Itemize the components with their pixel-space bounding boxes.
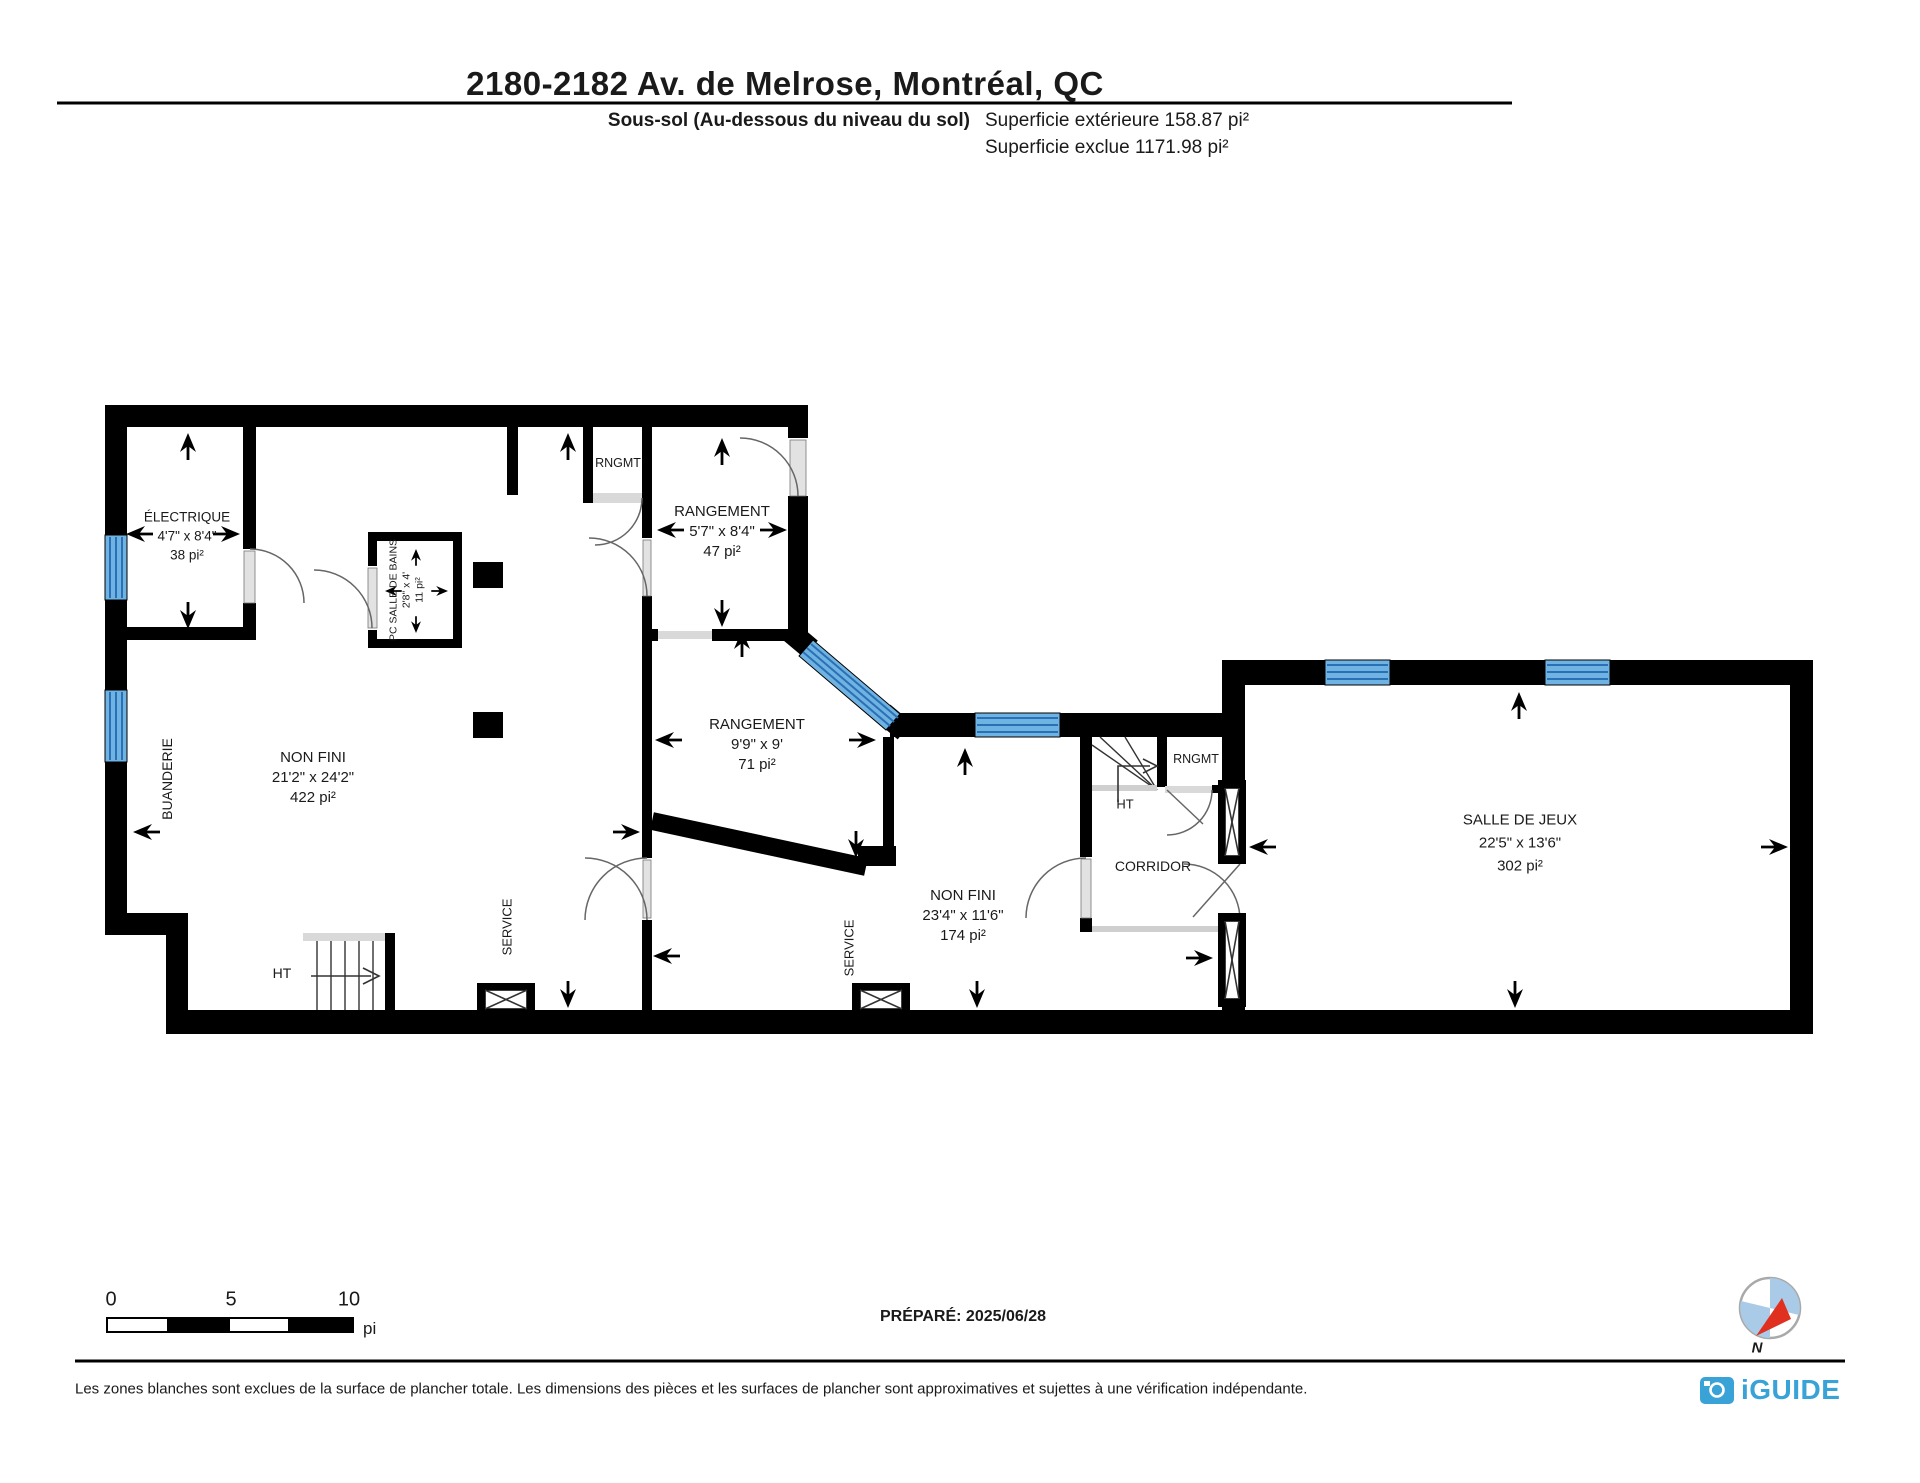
room-non-fini-droite: NON FINI23'4" x 11'6"174 pi²: [922, 886, 1003, 946]
iguide-logo-text: iGUIDE: [1741, 1374, 1840, 1406]
label-ht-2: HT: [1116, 797, 1133, 812]
room-buanderie: BUANDERIE: [159, 738, 175, 820]
post: [473, 562, 503, 588]
room-rngmt-corridor: RNGMT: [1173, 752, 1219, 766]
compass-icon: [1740, 1278, 1800, 1338]
post: [473, 712, 503, 738]
scale-tick-10: 10: [338, 1289, 360, 1312]
room-electrique: ÉLECTRIQUE4'7" x 8'4"38 pi²: [144, 508, 230, 565]
floorplan-page: 2180-2182 Av. de Melrose, Montréal, QC S…: [0, 0, 1920, 1483]
excluded-area: Superficie exclue 1171.98 pi²: [985, 137, 1229, 159]
scale-tick-5: 5: [225, 1289, 236, 1312]
iguide-logo-icon: [1700, 1377, 1734, 1404]
room-rngmt-top: RNGMT: [595, 456, 641, 470]
scale-tick-0: 0: [105, 1289, 116, 1312]
label-ht-1: HT: [273, 965, 292, 981]
floor-label: Sous-sol (Au-dessous du niveau du sol): [608, 110, 970, 132]
page-title: 2180-2182 Av. de Melrose, Montréal, QC: [466, 65, 1104, 103]
stairs-left: [303, 933, 395, 1010]
room-rangement-top: RANGEMENT5'7" x 8'4"47 pi²: [674, 502, 770, 562]
scale-unit: pi: [363, 1319, 376, 1339]
label-service-1: SERVICE: [500, 899, 515, 956]
room-corridor: CORRIDOR: [1115, 858, 1191, 874]
prepared-date: PRÉPARÉ: 2025/06/28: [880, 1308, 1046, 1326]
room-non-fini-gauche: NON FINI21'2" x 24'2"422 pi²: [272, 748, 354, 808]
label-service-2: SERVICE: [842, 920, 857, 977]
room-pc-salle-de-bains: PC SALLE DE BAINS2'8" x 4'11 pi²: [388, 539, 427, 641]
exterior-area: Superficie extérieure 158.87 pi²: [985, 110, 1249, 132]
windows: [105, 535, 1610, 762]
floorplan-drawing: [0, 0, 1920, 1483]
compass-north-label: N: [1752, 1340, 1763, 1357]
room-rangement-centre: RANGEMENT9'9" x 9'71 pi²: [709, 715, 805, 775]
scale-bar: [107, 1318, 353, 1332]
stairs-corridor: [1092, 737, 1157, 802]
disclaimer-text: Les zones blanches sont exclues de la su…: [75, 1381, 1307, 1398]
room-salle-de-jeux: SALLE DE JEUX22'5" x 13'6"302 pi²: [1463, 809, 1577, 878]
